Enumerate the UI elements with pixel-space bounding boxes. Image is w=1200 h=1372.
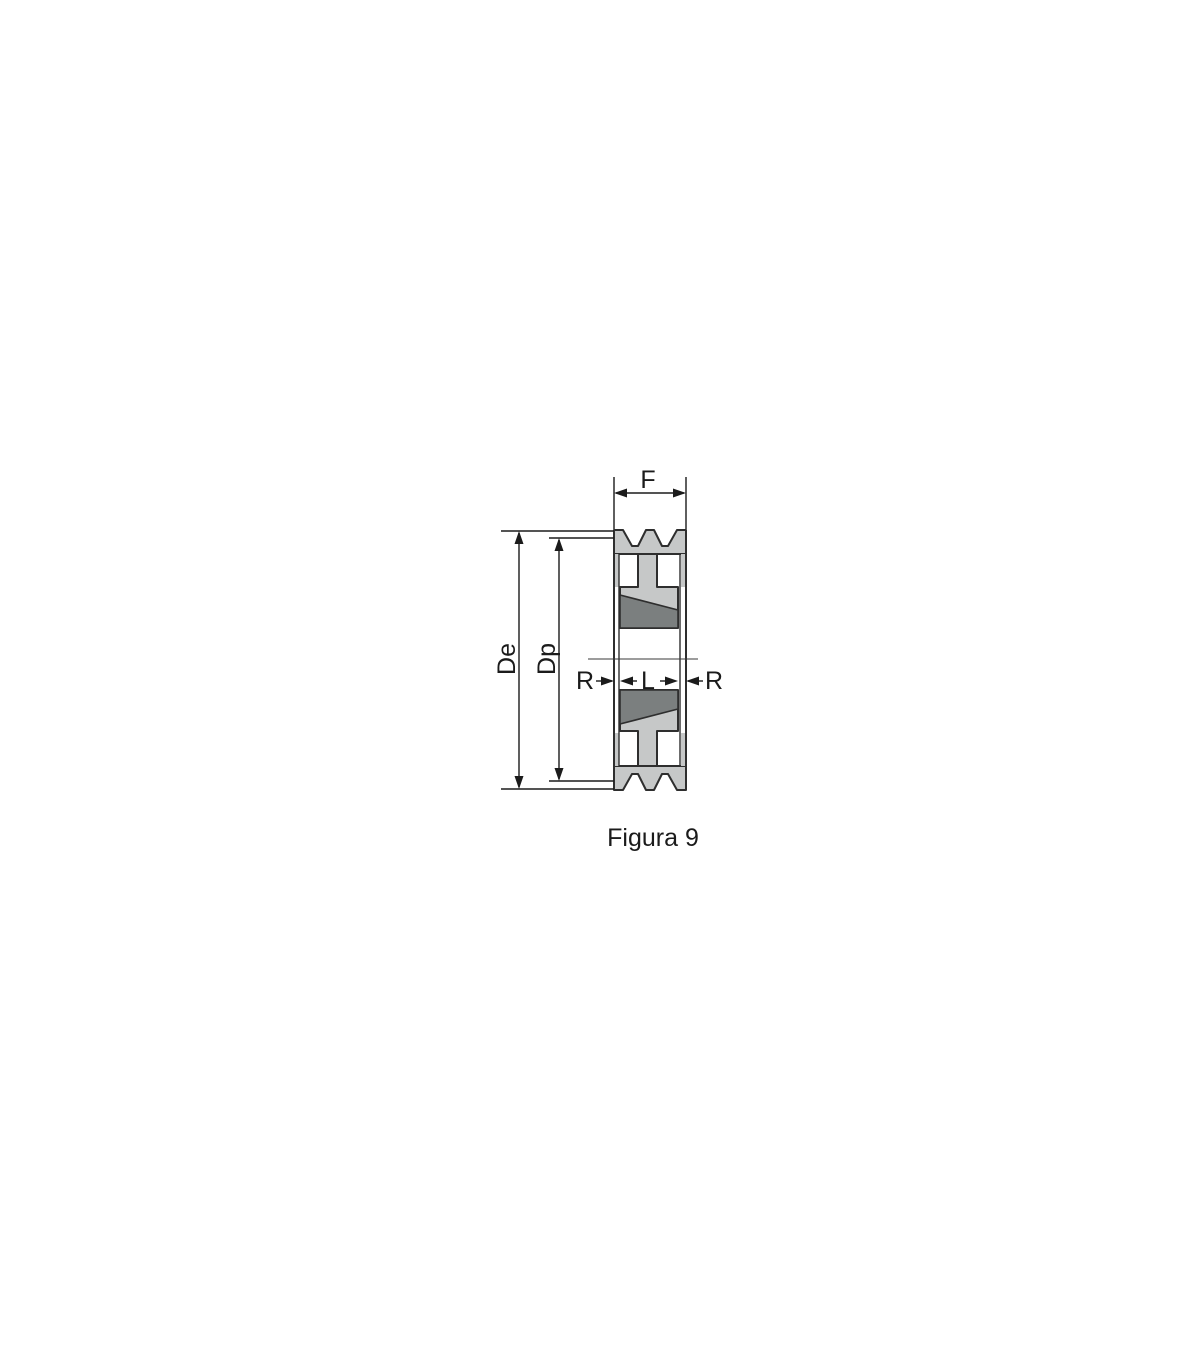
figure-background [0,0,1200,1372]
top-rim-grooves [614,530,686,554]
face-width-label: F [640,466,655,494]
outer-diameter-label: De [493,643,521,675]
bottom-rim-grooves [614,766,686,790]
recess-right-label: R [705,667,723,695]
pitch-diameter-label: Dp [533,643,561,675]
pulley-section-figure: F De Dp R L R Figura 9 [0,0,1200,1372]
bush-length-label: L [641,667,655,695]
recess-left-label: R [576,667,594,695]
figure-caption: Figura 9 [607,824,699,852]
